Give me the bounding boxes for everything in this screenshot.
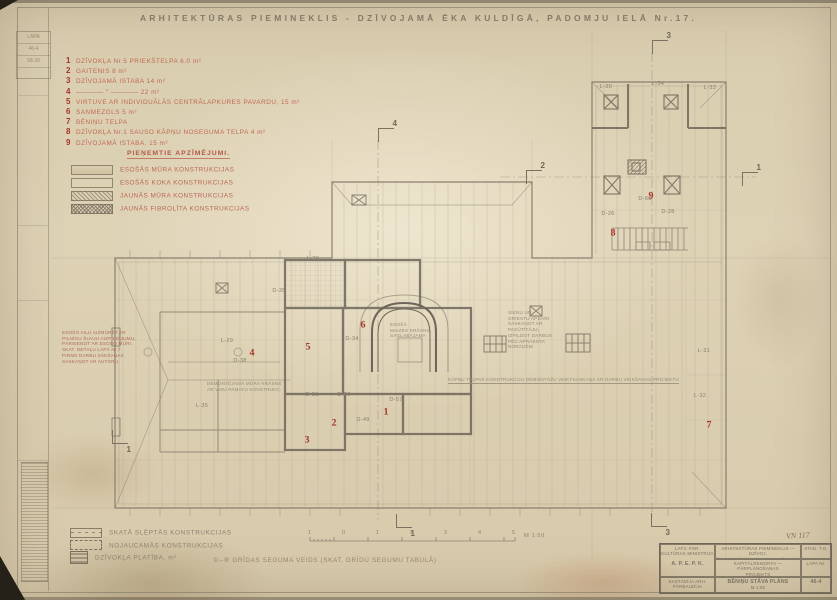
- section-marker: 2: [526, 170, 542, 184]
- room-list-label: DZĪVOJAMĀ ISTABA 14 m²: [76, 78, 165, 85]
- tb-stage: STAD. T.D.: [801, 544, 831, 559]
- legend-row: JAUNĀS FIBROLĪTA KONSTRUKCIJAS: [71, 200, 250, 213]
- legend-row: JAUNĀS MŪRA KONSTRUKCIJAS: [71, 187, 250, 200]
- plan-room-label: L-35: [196, 403, 208, 409]
- plan-room-label: D-49: [356, 417, 369, 423]
- tb-org-abbrev: A. P. E. P. K.: [661, 561, 714, 567]
- symbols-legend-heading: PIEŅEMTIE APZĪMĒJUMI.: [127, 150, 230, 159]
- legend-row: ESOŠĀS MŪRA KONSTRUKCIJAS: [71, 161, 250, 174]
- red-position-number: 4: [249, 347, 254, 358]
- room-list-number: 4: [66, 87, 76, 96]
- bottom-legend: SKATĀ SLĒPTĀS KONSTRUKCIJASNOJAUCAMĀS KO…: [70, 524, 232, 562]
- bottom-legend-row: DZĪVOKĻA PLATĪBA, m²: [70, 549, 232, 562]
- scale-tick-label: 1: [308, 530, 311, 536]
- title-block: LATV. PSR. KULTŪRAS MINISTRIJA A. P. E. …: [659, 543, 832, 594]
- note-line: AR VISU PAMATU KONSTRUKC.: [207, 387, 282, 393]
- room-list-label: ———— ʺ ———— 22 m²: [76, 89, 160, 96]
- scale-tick-label: 0: [342, 530, 345, 536]
- plan-room-label: D-35: [272, 288, 285, 294]
- red-position-number: 6: [360, 319, 365, 330]
- plan-room-label: D-51: [305, 392, 318, 398]
- red-position-number: 9: [648, 190, 653, 201]
- legend-label: JAUNĀS FIBROLĪTA KONSTRUKCIJAS: [120, 205, 250, 212]
- note-line: KĀPŅU TELPAS KONSTRUKCIJU DEMONTĀŽU VEIK…: [448, 377, 572, 384]
- room-list-item: 1DZĪVOKĻA Nr.5 PRIEKŠTELPA 6.0 m²: [66, 56, 300, 66]
- section-marker-number: 3: [667, 31, 671, 40]
- section-marker-number: 4: [393, 119, 397, 128]
- room-list-number: 8: [66, 127, 76, 136]
- plan-room-label: L-33: [704, 85, 716, 91]
- room-list-label: DZĪVOKĻA Nr.1 SAUSO KĀPŅU NOSEGUMA TELPA…: [76, 129, 266, 136]
- red-position-number: 5: [305, 341, 310, 352]
- scale-tick-label: 2: [410, 530, 413, 536]
- room-list-number: 7: [66, 117, 76, 126]
- plan-room-label: D-28: [661, 209, 674, 215]
- red-position-number: 8: [610, 227, 615, 238]
- note-line: SAGLABĀJAMA: [390, 333, 430, 339]
- red-position-number: 3: [304, 434, 309, 445]
- note-line: DEMONTĒJAMĀ MŪRA KRĀSNS: [207, 381, 282, 387]
- pencil-note: KĀPŅU TELPAS KONSTRUKCIJU DEMONTĀŽU VEIK…: [448, 377, 679, 384]
- pencil-note: SIENU UNGRIESTU APDARISASKAŅOT ARPASŪTĪT…: [508, 310, 552, 350]
- plan-room-label: D-58: [337, 392, 350, 398]
- legend-label: ESOŠĀS KOKA KONSTRUKCIJAS: [120, 179, 233, 186]
- tb-project-name: ARHITEKTŪRAS PIEMINEKLIS — DZĪVOJ. ĒKA K…: [715, 544, 801, 559]
- note-line: SASKAŅĀ AR DARBU VEIKŠANAS PROJEKTU: [572, 377, 679, 384]
- pencil-note: ESOŠĀMAIZES KRĀSNSSAGLABĀJAMA: [390, 322, 430, 339]
- strip-divider: [18, 225, 48, 226]
- corner-stamp-line: 46-4: [17, 44, 50, 56]
- pencil-note: ESOŠO AILU AIZMŪRĒT ARPILNĪGU ŠUVJU AIZP…: [62, 330, 136, 364]
- section-marker: 1: [396, 514, 412, 528]
- section-marker: 1: [742, 172, 758, 186]
- section-marker: 3: [651, 513, 667, 527]
- room-list-item: 6SANMEZGLS 5 m²: [66, 107, 300, 117]
- pencil-note: DEMONTĒJAMĀ MŪRA KRĀSNSAR VISU PAMATU KO…: [207, 381, 282, 392]
- scan-edge-shadow: [0, 0, 837, 3]
- handwritten-inventory-number: VN 117: [786, 530, 810, 540]
- room-list-item: 7BĒNIŅU TELPA: [66, 117, 300, 127]
- legend-row: ESOŠĀS KOKA KONSTRUKCIJAS: [71, 174, 250, 187]
- room-list-label: SANMEZGLS 5 m²: [76, 109, 137, 116]
- tb-drawing-name: BĒNIŅU STĀVA PLĀNS M 1:50: [715, 577, 801, 593]
- plan-room-label: L-29: [221, 338, 233, 344]
- red-position-number: 2: [331, 417, 336, 428]
- room-list: 1DZĪVOKĻA Nr.5 PRIEKŠTELPA 6.0 m²2GAITEN…: [66, 56, 300, 148]
- bottom-legend-label: DZĪVOKĻA PLATĪBA, m²: [95, 554, 177, 561]
- plan-room-label: L-32: [694, 393, 706, 399]
- note-line: NORĀDĒM: [508, 344, 552, 350]
- room-list-item: 3DZĪVOJAMĀ ISTABA 14 m²: [66, 76, 300, 86]
- plan-room-label: L-38: [307, 256, 319, 262]
- scale-tick-label: 4: [478, 530, 481, 536]
- tb-sheet-number: 46-4: [801, 577, 831, 593]
- room-list-label: BĒNIŅU TELPA: [76, 119, 128, 126]
- plan-room-label: D-26: [601, 211, 614, 217]
- strip-divider: [18, 460, 48, 461]
- room-list-label: DZĪVOKĻA Nr.5 PRIEKŠTELPA 6.0 m²: [76, 58, 201, 65]
- tb-signatures: SASTĀDĪJA ARH. PĀRBAUDĪJA: [660, 577, 715, 593]
- room-list-number: 1: [66, 56, 76, 65]
- tb-sheet-label: LAPA Nr.: [801, 559, 831, 577]
- scale-tick-label: 1: [376, 530, 379, 536]
- room-list-item: 8DZĪVOKĻA Nr.1 SAUSO KĀPŅU NOSEGUMA TELP…: [66, 127, 300, 137]
- tb-sig2: PĀRBAUDĪJA: [661, 584, 714, 589]
- room-list-number: 6: [66, 107, 76, 116]
- corner-stamp-line: 58-20: [17, 56, 50, 68]
- tb-drawing-scale: M 1:50: [716, 585, 800, 590]
- scale-tick-label: 3: [444, 530, 447, 536]
- section-marker: 1: [112, 430, 128, 444]
- strip-divider: [18, 95, 48, 96]
- tb-org: LATV. PSR. KULTŪRAS MINISTRIJA A. P. E. …: [660, 544, 715, 577]
- section-marker-number: 3: [666, 528, 670, 537]
- symbols-legend: ESOŠĀS MŪRA KONSTRUKCIJASESOŠĀS KOKA KON…: [71, 161, 250, 213]
- note-line: IZPILDOT DARBUS: [508, 333, 552, 339]
- tb-project-type: KAPITĀLREMONTA — PĀRPLĀNOŠANAS PROJEKTS: [715, 559, 801, 577]
- plan-room-label: D-57: [389, 397, 402, 403]
- corner-sheet-stamp: LAPA46-458-20: [16, 31, 51, 79]
- section-marker-number: 1: [757, 163, 761, 172]
- note-line: ESOŠO AILU AIZMŪRĒT AR: [62, 330, 136, 336]
- section-marker-number: 1: [127, 445, 131, 454]
- tb-sheet-no-label: LAPA Nr.: [802, 561, 830, 566]
- bottom-legend-label: SKATĀ SLĒPTĀS KONSTRUKCIJAS: [109, 529, 232, 536]
- room-list-number: 9: [66, 138, 76, 147]
- bottom-legend-row: NOJAUCAMĀS KONSTRUKCIJAS: [70, 537, 232, 550]
- scale-label: M 1:50: [524, 533, 545, 539]
- room-list-item: 4———— ʺ ———— 22 m²: [66, 87, 300, 97]
- legend-label: JAUNĀS MŪRA KONSTRUKCIJAS: [120, 192, 233, 199]
- tb-sheet-no-value: 46-4: [802, 579, 830, 585]
- room-list-number: 2: [66, 66, 76, 75]
- room-list-number: 3: [66, 76, 76, 85]
- legend-label: ESOŠĀS MŪRA KONSTRUKCIJAS: [120, 166, 234, 173]
- plan-room-label: L-31: [698, 348, 710, 354]
- room-list-label: GAITENIS 8 m²: [76, 68, 127, 75]
- plan-room-label: L-34: [652, 81, 664, 87]
- area-swatch: [70, 551, 88, 564]
- tb-org-line2: KULTŪRAS MINISTRIJA: [661, 551, 714, 556]
- room-list-label: VIRTUVE AR INDIVIDUĀLĀS CENTRĀLAPKURES P…: [76, 99, 300, 106]
- tb-stage-label: STAD. T.D.: [802, 546, 830, 551]
- room-list-item: 5VIRTUVE AR INDIVIDUĀLĀS CENTRĀLAPKURES …: [66, 97, 300, 107]
- margin-strip-line: [48, 8, 49, 591]
- section-marker: 3: [652, 40, 668, 54]
- drawing-title: ARHITEKTŪRAS PIEMINEKLIS - DZĪVOJAMĀ ĒKA…: [0, 13, 837, 23]
- tb-project-line1: ARHITEKTŪRAS PIEMINEKLIS — DZĪVOJ.: [716, 546, 800, 557]
- room-list-item: 9DZĪVOJAMĀ ISTABA, 15 m²: [66, 138, 300, 148]
- scanned-drawing-sheet: LAPA46-458-20 ARHITEKTŪRAS PIEMINEKLIS -…: [0, 0, 837, 600]
- archive-stamp-texture: [21, 462, 48, 582]
- new-fibrolite-swatch: [71, 204, 113, 214]
- scale-tick-label: 5: [512, 530, 515, 536]
- room-list-label: DZĪVOJAMĀ ISTABA, 15 m²: [76, 140, 168, 147]
- plan-room-label: D-34: [345, 336, 358, 342]
- corner-stamp-line: LAPA: [17, 32, 50, 44]
- bottom-legend-label: NOJAUCAMĀS KONSTRUKCIJAS: [109, 542, 223, 549]
- plan-room-label: L-30: [600, 84, 612, 90]
- floor-covering-note: ①–⑨ GRĪDAS SEGUMA VEIDS (SKAT. GRĪDU SEG…: [213, 556, 437, 564]
- strip-divider: [18, 300, 48, 301]
- bottom-legend-row: SKATĀ SLĒPTĀS KONSTRUKCIJAS: [70, 524, 232, 537]
- red-position-number: 7: [706, 419, 711, 430]
- tb-type-line1: KAPITĀLREMONTA — PĀRPLĀNOŠANAS: [716, 561, 800, 572]
- red-position-number: 1: [383, 406, 388, 417]
- section-marker: 4: [378, 128, 394, 142]
- note-line: SASKAŅOT AR AUTORU: [62, 359, 136, 365]
- plan-room-label: D-38: [233, 358, 246, 364]
- room-list-number: 5: [66, 97, 76, 106]
- section-marker-number: 2: [541, 161, 545, 170]
- room-list-item: 2GAITENIS 8 m²: [66, 66, 300, 76]
